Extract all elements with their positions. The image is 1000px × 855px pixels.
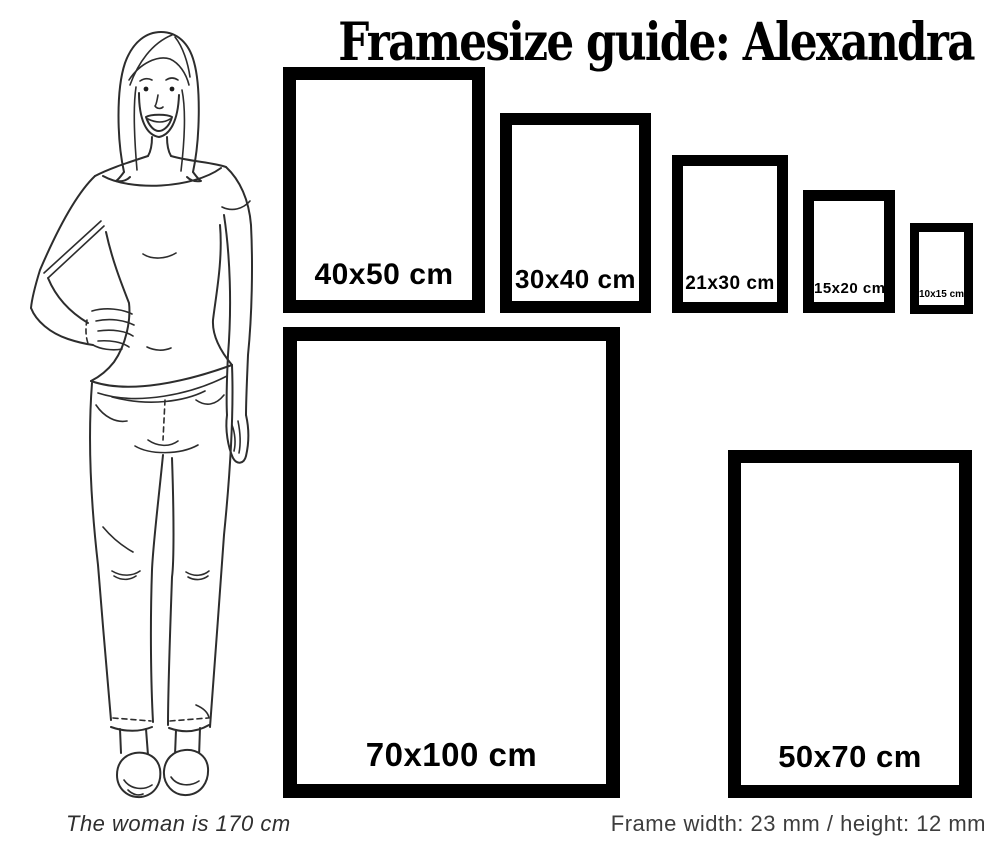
woman-torso (31, 156, 252, 463)
woman-shoes (117, 750, 208, 797)
frame-40x50: 40x50 cm (283, 67, 485, 313)
frame-size-label: 10x15 cm (919, 289, 964, 300)
frame-size-label: 70x100 cm (297, 736, 606, 774)
frame-21x30: 21x30 cm (672, 155, 788, 313)
frame-size-label: 30x40 cm (512, 264, 639, 295)
frame-10x15: 10x15 cm (910, 223, 973, 314)
frame-30x40: 30x40 cm (500, 113, 651, 313)
frame-15x20: 15x20 cm (803, 190, 895, 313)
frame-size-label: 50x70 cm (741, 739, 959, 775)
frame-size-label: 40x50 cm (296, 258, 472, 292)
frame-50x70: 50x70 cm (728, 450, 972, 798)
framesize-guide-page: Framesize guide: Alexandra (0, 0, 1000, 855)
frame-size-label: 21x30 cm (683, 273, 777, 295)
frame-size-label: 15x20 cm (814, 280, 884, 297)
frame-dimensions-note: Frame width: 23 mm / height: 12 mm (611, 811, 986, 837)
frame-70x100: 70x100 cm (283, 327, 620, 798)
woman-height-note: The woman is 170 cm (66, 811, 291, 837)
woman-illustration (0, 15, 270, 825)
page-title: Framesize guide: Alexandra (338, 12, 918, 72)
woman-jeans (90, 365, 233, 757)
